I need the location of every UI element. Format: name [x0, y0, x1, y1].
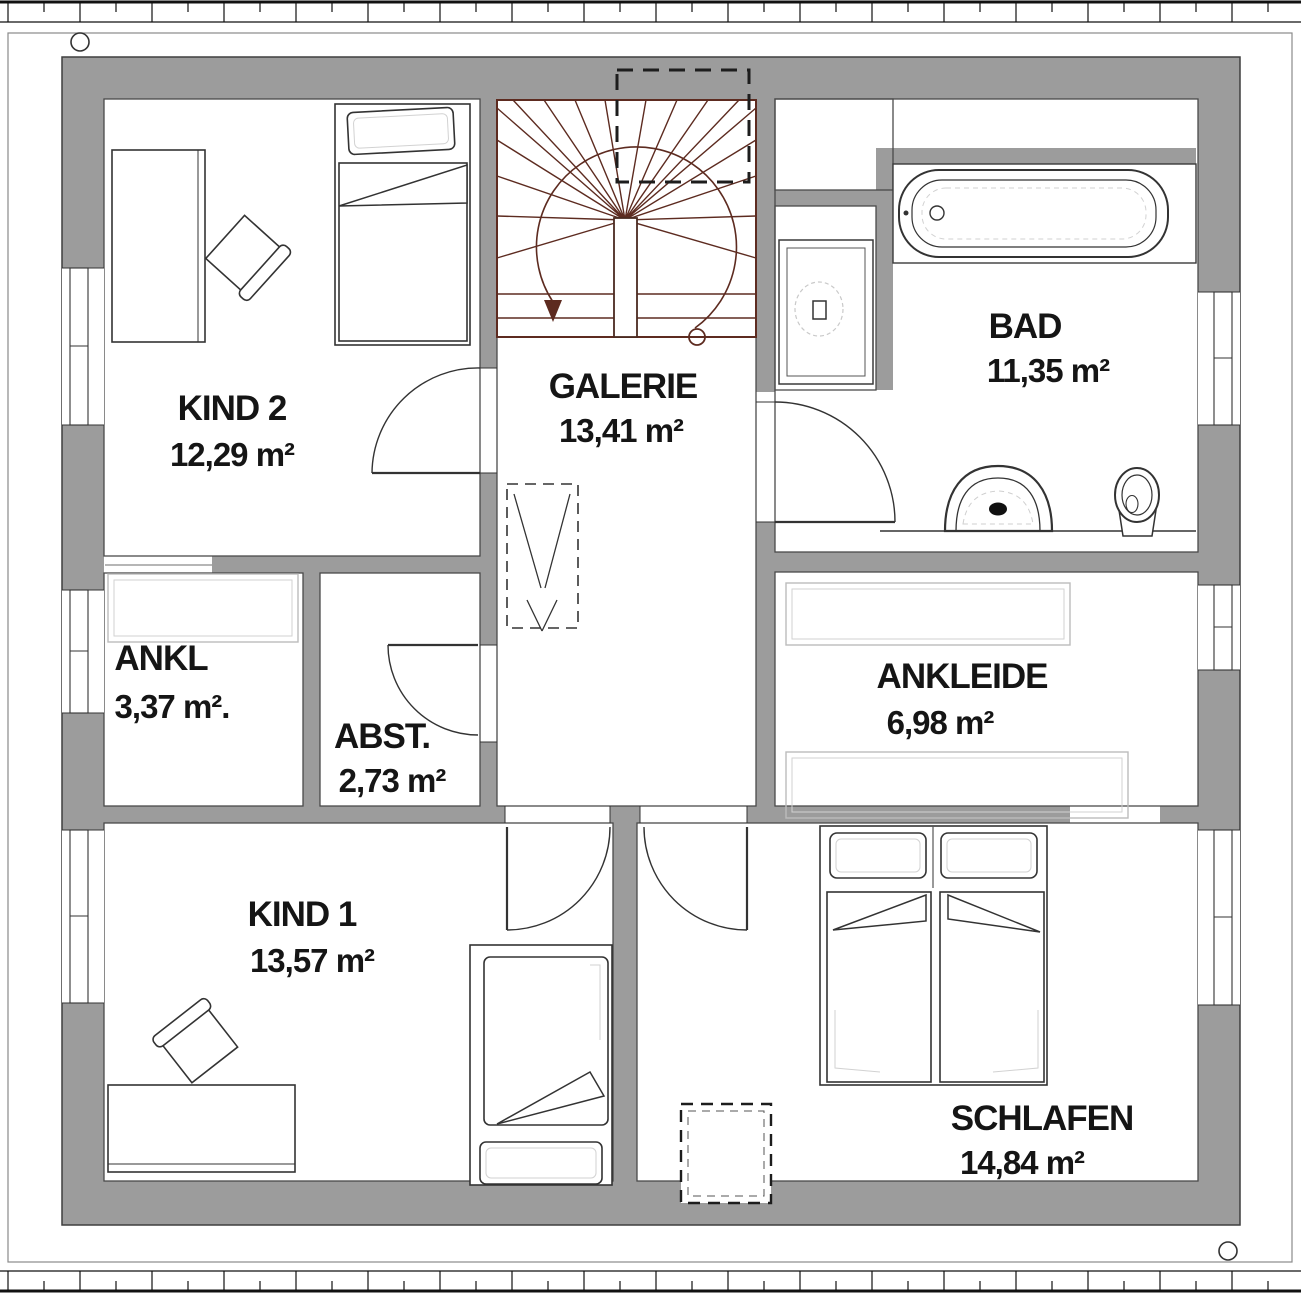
registration-circle-top-left [71, 33, 89, 51]
room-label-ankleide: ANKLEIDE [877, 657, 1048, 696]
door-kind2 [372, 368, 497, 473]
galerie-void-marker [507, 484, 578, 631]
bed-kind2 [335, 104, 470, 345]
room-area-galerie: 13,41 m² [559, 412, 684, 449]
shower [779, 240, 873, 384]
registration-circle-bottom-right [1219, 1242, 1237, 1260]
desk-kind2 [112, 150, 205, 342]
room-area-kind2: 12,29 m² [170, 436, 295, 473]
staircase [497, 100, 756, 345]
door-bad [756, 402, 895, 522]
room-label-bad: BAD [989, 307, 1062, 346]
toilet [1115, 468, 1159, 536]
wardrobe-ankleide-top [786, 583, 1070, 645]
room-label-galerie: GALERIE [549, 367, 698, 406]
ruler-bottom [0, 1271, 1301, 1291]
desk-chair-kind1 [151, 997, 242, 1086]
room-area-ankleide: 6,98 m² [887, 704, 995, 741]
room-label-schlafen: SCHLAFEN [951, 1099, 1134, 1138]
chimney-bottom [681, 1104, 771, 1203]
room-area-ankl: 3,37 m². [115, 688, 230, 725]
bed-double-schlafen [820, 826, 1047, 1085]
washbasin-drain [989, 503, 1007, 516]
stair-newel [614, 218, 637, 337]
wardrobe-ankl [108, 574, 298, 642]
window-ankl [62, 590, 104, 713]
bed-kind1 [470, 945, 612, 1185]
door-schlafen [640, 806, 747, 930]
window-kind2 [62, 268, 104, 425]
room-area-kind1: 13,57 m² [250, 942, 375, 979]
room-area-schlafen: 14,84 m² [960, 1144, 1085, 1181]
room-area-bad: 11,35 m² [987, 352, 1110, 389]
room-area-abst: 2,73 m² [339, 762, 447, 799]
room-label-kind2: KIND 2 [178, 389, 287, 428]
room-label-ankl: ANKL [114, 639, 208, 678]
bathtub [893, 164, 1196, 263]
window-ankleide [1198, 585, 1240, 670]
desk-kind1 [108, 1085, 295, 1172]
door-kind1 [505, 806, 610, 930]
window-bad [1198, 292, 1240, 425]
ruler-top [0, 2, 1301, 22]
floor-plan-drawing: KIND 2 12,29 m² GALERIE 13,41 m² BAD 11,… [0, 0, 1301, 1293]
floor-plan: KIND 2 12,29 m² GALERIE 13,41 m² BAD 11,… [0, 0, 1301, 1293]
window-schlafen [1198, 830, 1240, 1005]
washbasin [945, 466, 1052, 531]
window-kind1 [62, 830, 104, 1003]
bathtub-faucet [904, 211, 909, 216]
room-label-kind1: KIND 1 [248, 895, 357, 934]
desk-chair-kind2 [202, 212, 292, 303]
room-label-abst: ABST. [334, 717, 430, 756]
